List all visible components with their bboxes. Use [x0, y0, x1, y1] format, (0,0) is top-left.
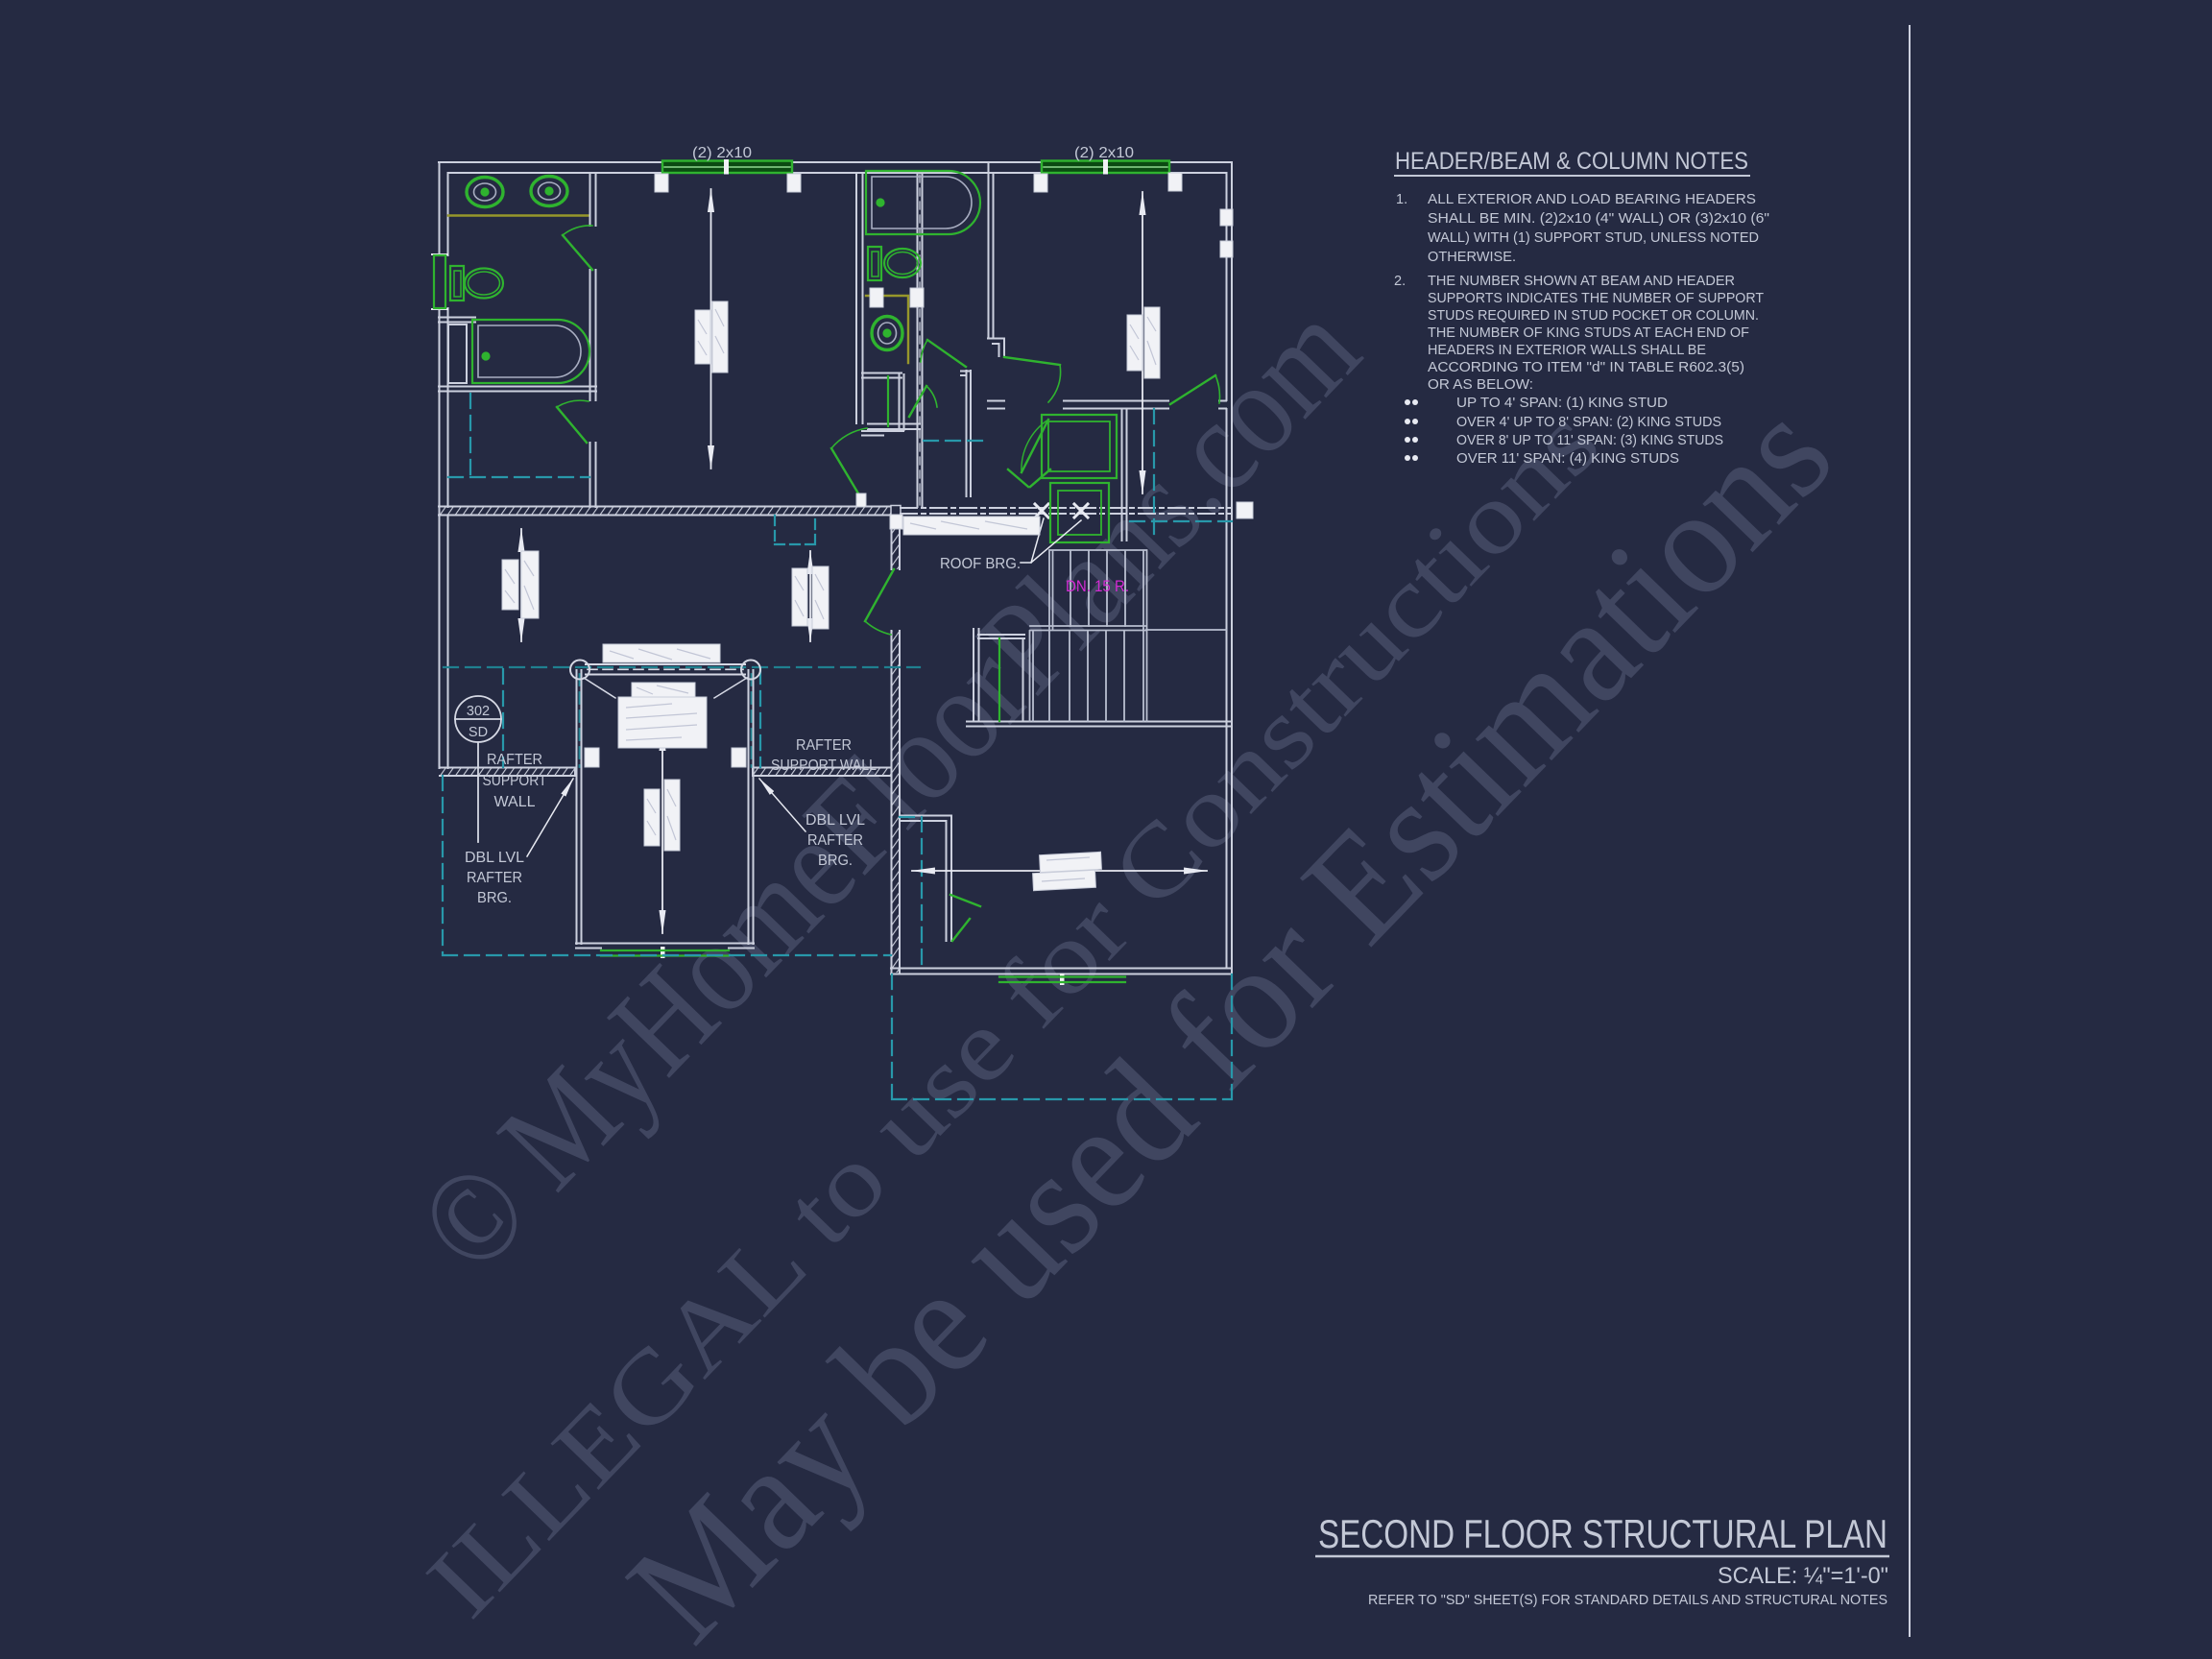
- svg-text:ACCORDING TO ITEM "d" IN TABLE: ACCORDING TO ITEM "d" IN TABLE R602.3(5): [1428, 360, 1744, 375]
- svg-text:UP TO 4' SPAN: (1) KING STUD: UP TO 4' SPAN: (1) KING STUD: [1456, 396, 1668, 411]
- svg-text:SUPPORT: SUPPORT: [483, 773, 547, 789]
- svg-text:HEADERS IN EXTERIOR WALLS SHAL: HEADERS IN EXTERIOR WALLS SHALL BE: [1428, 343, 1706, 358]
- svg-text:BRG.: BRG.: [818, 853, 853, 869]
- svg-text:HEADER/BEAM & COLUMN NOTES: HEADER/BEAM & COLUMN NOTES: [1395, 148, 1748, 175]
- svg-text:THE NUMBER SHOWN AT BEAM AND H: THE NUMBER SHOWN AT BEAM AND HEADER: [1428, 274, 1735, 289]
- svg-text:1.: 1.: [1396, 192, 1407, 207]
- svg-text:SUPPORT WALL: SUPPORT WALL: [771, 757, 877, 774]
- svg-text:SUPPORTS INDICATES THE NUMBER: SUPPORTS INDICATES THE NUMBER OF SUPPORT: [1428, 291, 1764, 306]
- svg-text:OVER 4' UP TO 8' SPAN: (2) KIN: OVER 4' UP TO 8' SPAN: (2) KING STUDS: [1456, 415, 1721, 430]
- svg-text:SCALE: ¼"=1'-0": SCALE: ¼"=1'-0": [1718, 1563, 1888, 1589]
- svg-text:RAFTER: RAFTER: [807, 832, 863, 849]
- svg-text:(2) 2x10: (2) 2x10: [1074, 145, 1134, 161]
- svg-text:(2) 2x10: (2) 2x10: [692, 145, 752, 161]
- svg-text:OVER 11' SPAN: (4) KING STUDS: OVER 11' SPAN: (4) KING STUDS: [1456, 451, 1679, 467]
- svg-text:SHALL BE MIN. (2)2x10 (4" WALL: SHALL BE MIN. (2)2x10 (4" WALL) OR (3)2x…: [1428, 211, 1769, 227]
- svg-text:RAFTER: RAFTER: [487, 752, 542, 768]
- svg-text:2.: 2.: [1394, 274, 1406, 289]
- svg-text:ROOF BRG.: ROOF BRG.: [940, 556, 1021, 572]
- svg-text:ALL EXTERIOR AND LOAD BEARING: ALL EXTERIOR AND LOAD BEARING HEADERS: [1428, 192, 1756, 207]
- svg-text:SD: SD: [469, 725, 488, 740]
- svg-text:THE NUMBER OF KING STUDS AT EA: THE NUMBER OF KING STUDS AT EACH END OF: [1428, 325, 1749, 341]
- svg-text:DBL LVL: DBL LVL: [805, 812, 865, 829]
- svg-text:DBL LVL: DBL LVL: [465, 850, 524, 866]
- svg-text:STUDS REQUIRED IN STUD POCKET: STUDS REQUIRED IN STUD POCKET OR COLUMN.: [1428, 308, 1759, 324]
- svg-text:BRG.: BRG.: [477, 890, 512, 906]
- svg-text:OVER 8' UP TO 11' SPAN: (3) KI: OVER 8' UP TO 11' SPAN: (3) KING STUDS: [1456, 433, 1723, 448]
- svg-text:WALL: WALL: [494, 794, 536, 810]
- svg-text:WALL) WITH (1) SUPPORT STUD, U: WALL) WITH (1) SUPPORT STUD, UNLESS NOTE…: [1428, 230, 1759, 246]
- svg-text:RAFTER: RAFTER: [796, 737, 852, 754]
- svg-text:DN. 15 R.: DN. 15 R.: [1066, 578, 1129, 595]
- svg-text:OR AS BELOW:: OR AS BELOW:: [1428, 377, 1533, 393]
- svg-text:OTHERWISE.: OTHERWISE.: [1428, 250, 1516, 265]
- svg-text:302: 302: [467, 704, 490, 719]
- svg-text:REFER TO "SD" SHEET(S) FOR STA: REFER TO "SD" SHEET(S) FOR STANDARD DETA…: [1368, 1593, 1887, 1608]
- svg-text:RAFTER: RAFTER: [467, 870, 522, 886]
- svg-text:SECOND FLOOR STRUCTURAL PLAN: SECOND FLOOR STRUCTURAL PLAN: [1318, 1511, 1887, 1556]
